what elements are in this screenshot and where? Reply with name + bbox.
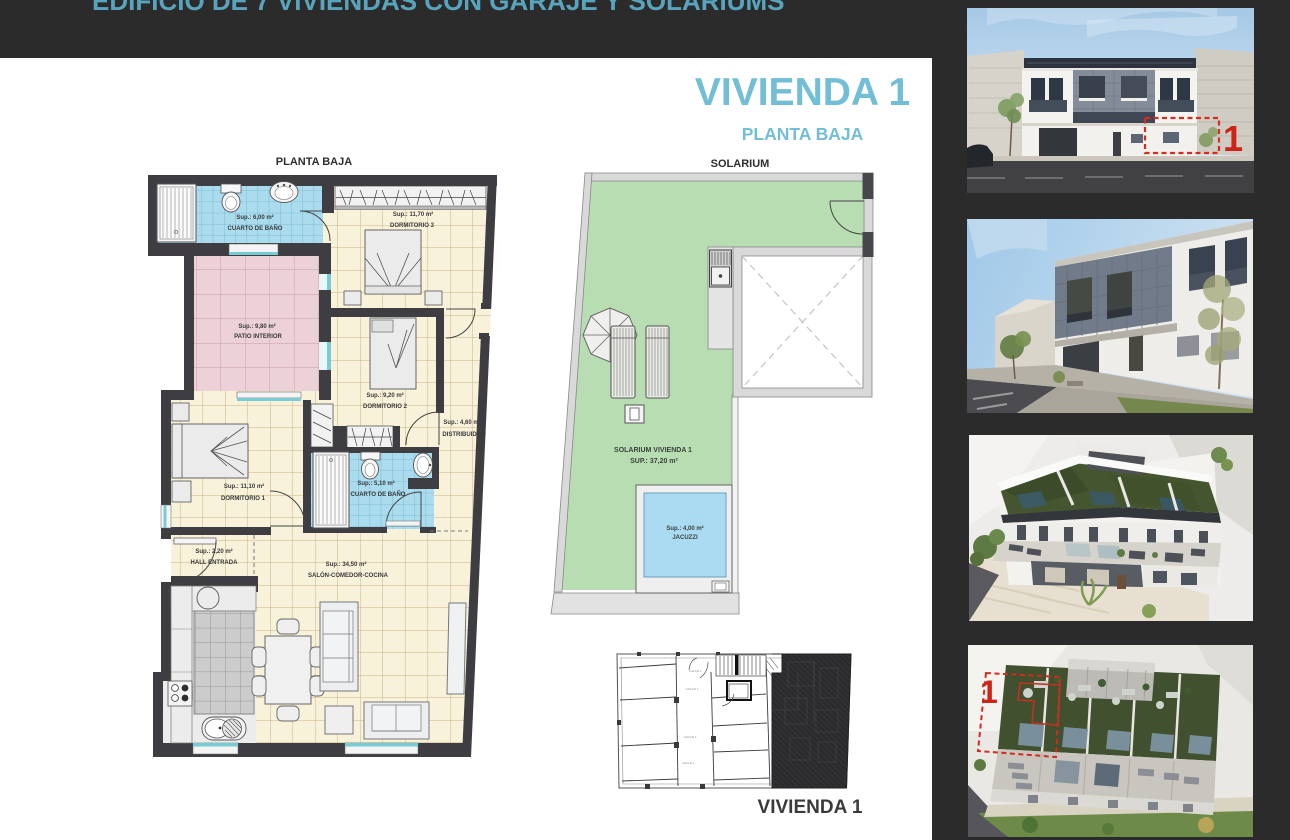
svg-text:Sup.: 4,60 m²: Sup.: 4,60 m² xyxy=(443,419,480,426)
svg-text:1: 1 xyxy=(980,674,998,710)
svg-text:JACUZZI: JACUZZI xyxy=(672,535,698,541)
svg-text:GARAJE 1: GARAJE 1 xyxy=(689,669,702,673)
svg-text:Sup.: 34,50 m²: Sup.: 34,50 m² xyxy=(326,561,367,568)
svg-text:Sup.: 2,20 m²: Sup.: 2,20 m² xyxy=(195,548,232,555)
svg-text:Sup.: 4,00 m²: Sup.: 4,00 m² xyxy=(666,525,703,532)
svg-text:1: 1 xyxy=(1223,118,1243,159)
svg-text:DORMITORIO 2: DORMITORIO 2 xyxy=(363,404,408,410)
svg-text:Sup.: 9,20 m²: Sup.: 9,20 m² xyxy=(366,392,403,399)
svg-text:Sup.: 5,10 m²: Sup.: 5,10 m² xyxy=(357,480,394,487)
svg-text:GARAJE 2: GARAJE 2 xyxy=(686,687,699,691)
svg-text:Sup.: 6,00 m²: Sup.: 6,00 m² xyxy=(236,214,273,221)
svg-text:HALL ENTRADA: HALL ENTRADA xyxy=(191,560,239,566)
svg-text:CUARTO DE BAÑO: CUARTO DE BAÑO xyxy=(351,491,406,498)
svg-text:CUARTO DE BAÑO: CUARTO DE BAÑO xyxy=(228,225,283,232)
svg-text:PATIO INTERIOR: PATIO INTERIOR xyxy=(234,334,282,340)
svg-text:SOLARIUM VIVIENDA 1: SOLARIUM VIVIENDA 1 xyxy=(614,447,692,454)
svg-text:DORMITORIO 3: DORMITORIO 3 xyxy=(390,223,435,229)
svg-text:Sup.: 11,10 m²: Sup.: 11,10 m² xyxy=(224,483,264,490)
svg-text:DISTRIBUIDOR: DISTRIBUIDOR xyxy=(442,432,486,438)
svg-text:Sup.: 9,80 m²: Sup.: 9,80 m² xyxy=(238,323,275,330)
svg-text:Sup.: 11,70 m²: Sup.: 11,70 m² xyxy=(393,211,433,218)
svg-text:SALÓN-COMEDOR-COCINA: SALÓN-COMEDOR-COCINA xyxy=(308,571,389,579)
svg-text:GARAJE 3: GARAJE 3 xyxy=(684,735,697,739)
svg-text:DORMITORIO 1: DORMITORIO 1 xyxy=(221,496,266,502)
svg-text:SUP.: 37,20 m²: SUP.: 37,20 m² xyxy=(630,458,678,465)
svg-text:GARAJE 4: GARAJE 4 xyxy=(682,761,695,765)
